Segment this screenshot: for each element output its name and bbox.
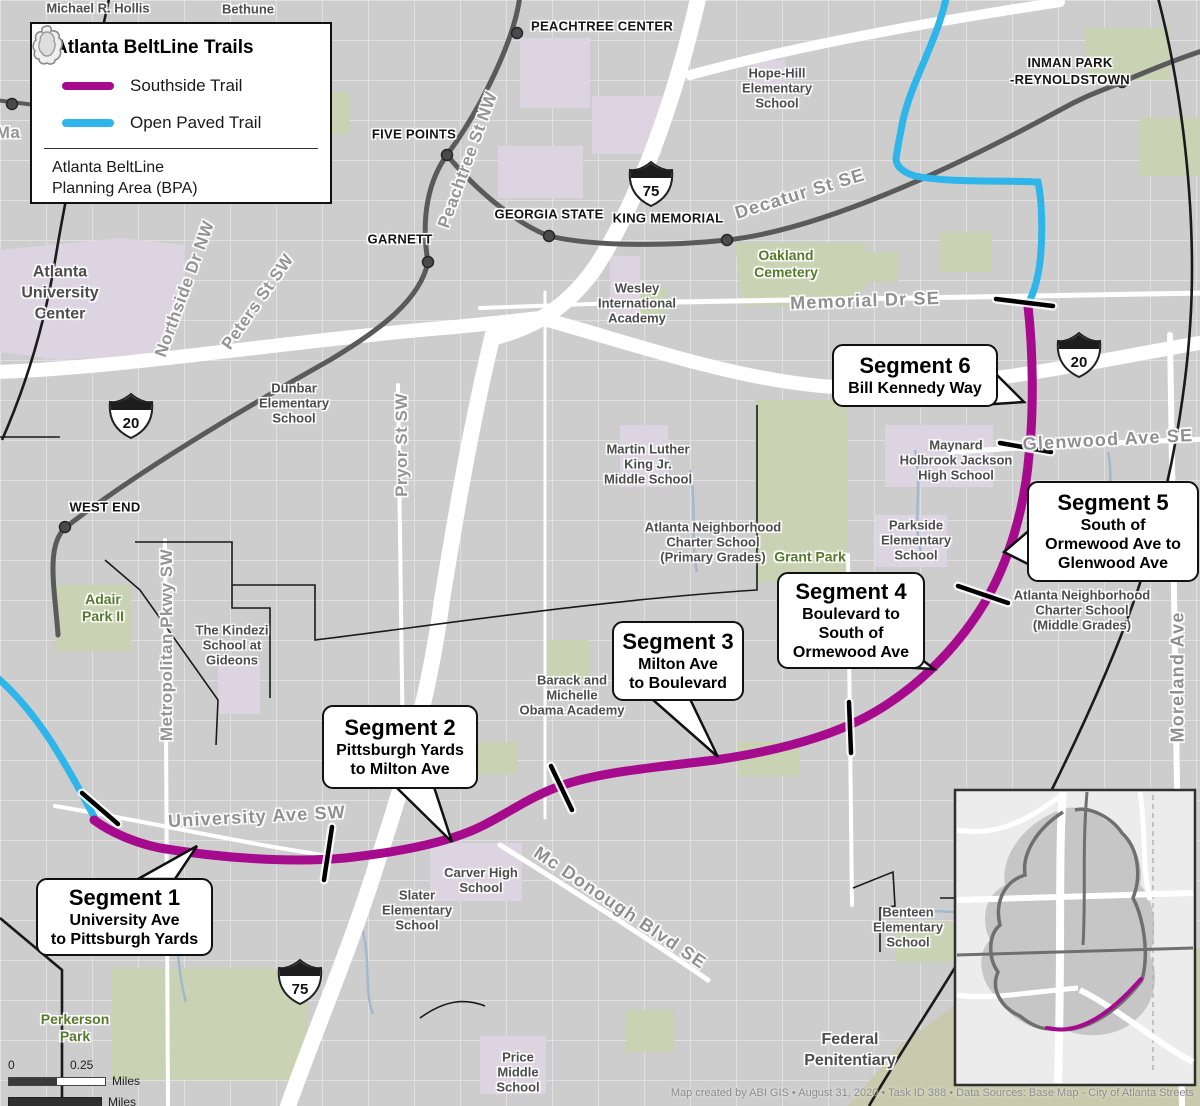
legend-item-label: Open Paved Trail <box>130 113 261 133</box>
bpa-area-icon <box>32 24 66 66</box>
transit-station-dot <box>1117 77 1128 88</box>
legend-item-label: Southside Trail <box>130 76 242 96</box>
scale-mid: 0.25 <box>70 1058 93 1072</box>
interstate-route-number: 75 <box>292 981 309 998</box>
scale-unit: Miles <box>108 1095 136 1106</box>
interstate-route-number: 75 <box>643 183 660 200</box>
legend-item-bpa: Atlanta BeltLine Planning Area (BPA) <box>32 149 330 199</box>
open-paved-trail-swatch <box>62 119 114 127</box>
scale-bar-graphic <box>8 1077 106 1086</box>
bpa-label: Atlanta BeltLine Planning Area (BPA) <box>52 157 198 199</box>
transit-station-dot <box>722 235 733 246</box>
scale-start: 0 <box>8 1058 15 1072</box>
scale-bar-partial: Miles <box>8 1095 136 1106</box>
scale-bar-partial-graphic <box>8 1097 102 1106</box>
transit-station-dot <box>544 231 555 242</box>
interstate-route-number: 20 <box>123 415 140 432</box>
credits-text: Map created by ABI GIS • August 31, 2020… <box>671 1087 1194 1099</box>
legend-item-open-paved: Open Paved Trail <box>32 113 330 133</box>
scale-bar: 0 0.25 Miles <box>8 1058 148 1088</box>
transit-station-dot <box>423 257 434 268</box>
transit-station-dot <box>512 28 523 39</box>
interstate-route-number: 20 <box>1071 354 1088 371</box>
legend-title: Atlanta BeltLine Trails <box>32 24 330 59</box>
transit-station-dot <box>60 522 71 533</box>
inset-map <box>955 790 1195 1085</box>
transit-station-dot <box>442 150 453 161</box>
transit-station-dot <box>7 99 18 110</box>
legend: Atlanta BeltLine Trails Southside Trail … <box>30 22 332 204</box>
scale-unit: Miles <box>112 1074 140 1088</box>
legend-item-southside: Southside Trail <box>32 76 330 96</box>
map-canvas: 75202075 Michael R. <box>0 0 1200 1106</box>
southside-trail-swatch <box>62 82 114 90</box>
segment-tick <box>849 702 851 753</box>
